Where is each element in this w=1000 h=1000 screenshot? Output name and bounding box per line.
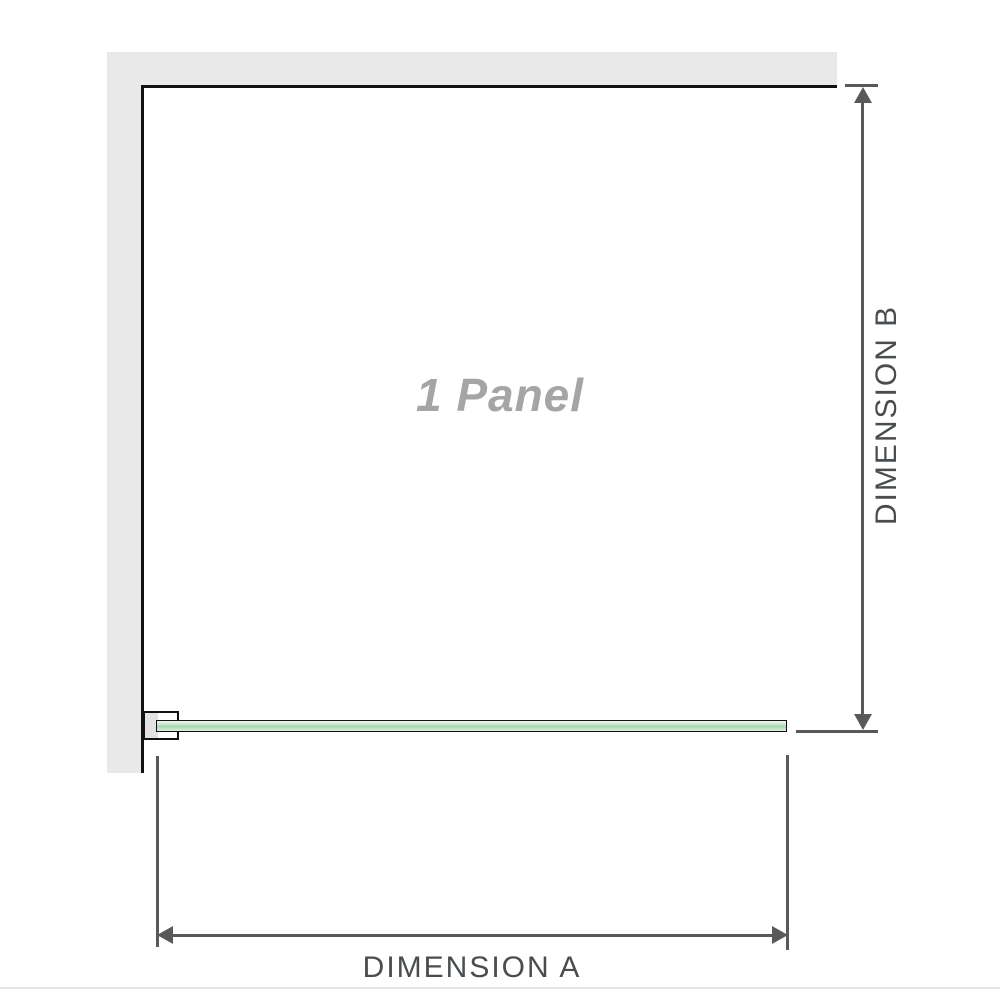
enclosure-top-edge (141, 85, 837, 88)
dimension-a-line (164, 934, 780, 937)
bottom-divider (0, 987, 1000, 989)
dimension-a-left-extension (156, 756, 159, 947)
dimension-b-arrowhead-down-icon (854, 714, 872, 730)
dimension-b-line (861, 96, 864, 722)
shower-panel-dimension-diagram: 1 Panel DIMENSION B DIMENSION A (0, 0, 1000, 1000)
panel-count-label: 1 Panel (330, 368, 670, 422)
dimension-b-label: DIMENSION B (870, 305, 904, 525)
dimension-a-arrowhead-left-icon (157, 926, 173, 944)
dimension-a-arrowhead-right-icon (772, 926, 788, 944)
glass-panel (156, 720, 787, 732)
wall-left (107, 52, 141, 773)
dimension-a-right-extension (786, 755, 789, 950)
enclosure-left-edge (141, 85, 144, 773)
wall-top (107, 52, 837, 85)
dimension-b-arrowhead-up-icon (854, 87, 872, 103)
dimension-a-label: DIMENSION A (363, 951, 582, 985)
dimension-b-bottom-tick (796, 730, 878, 733)
